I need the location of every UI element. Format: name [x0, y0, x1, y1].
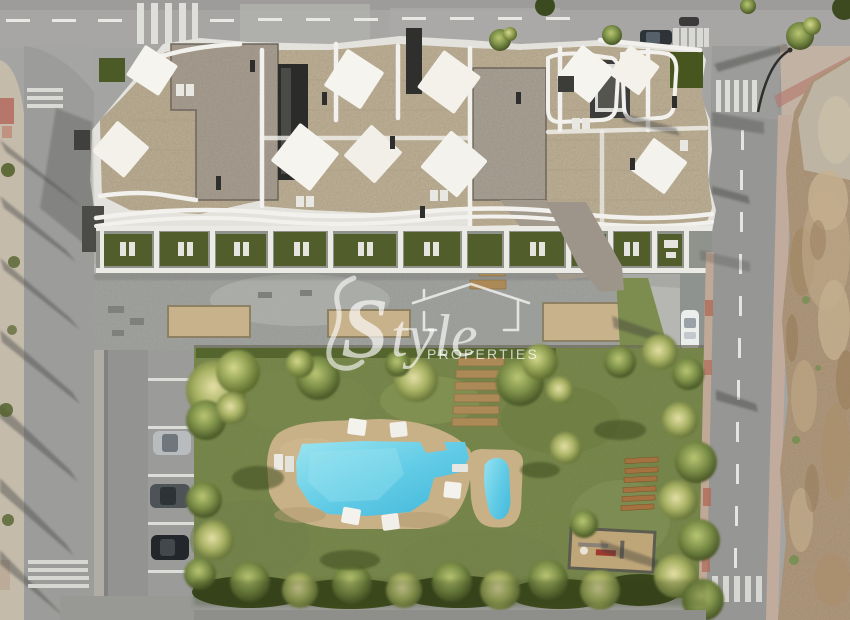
svg-text:PROPERTIES: PROPERTIES	[427, 346, 539, 362]
svg-text:S: S	[341, 280, 389, 376]
